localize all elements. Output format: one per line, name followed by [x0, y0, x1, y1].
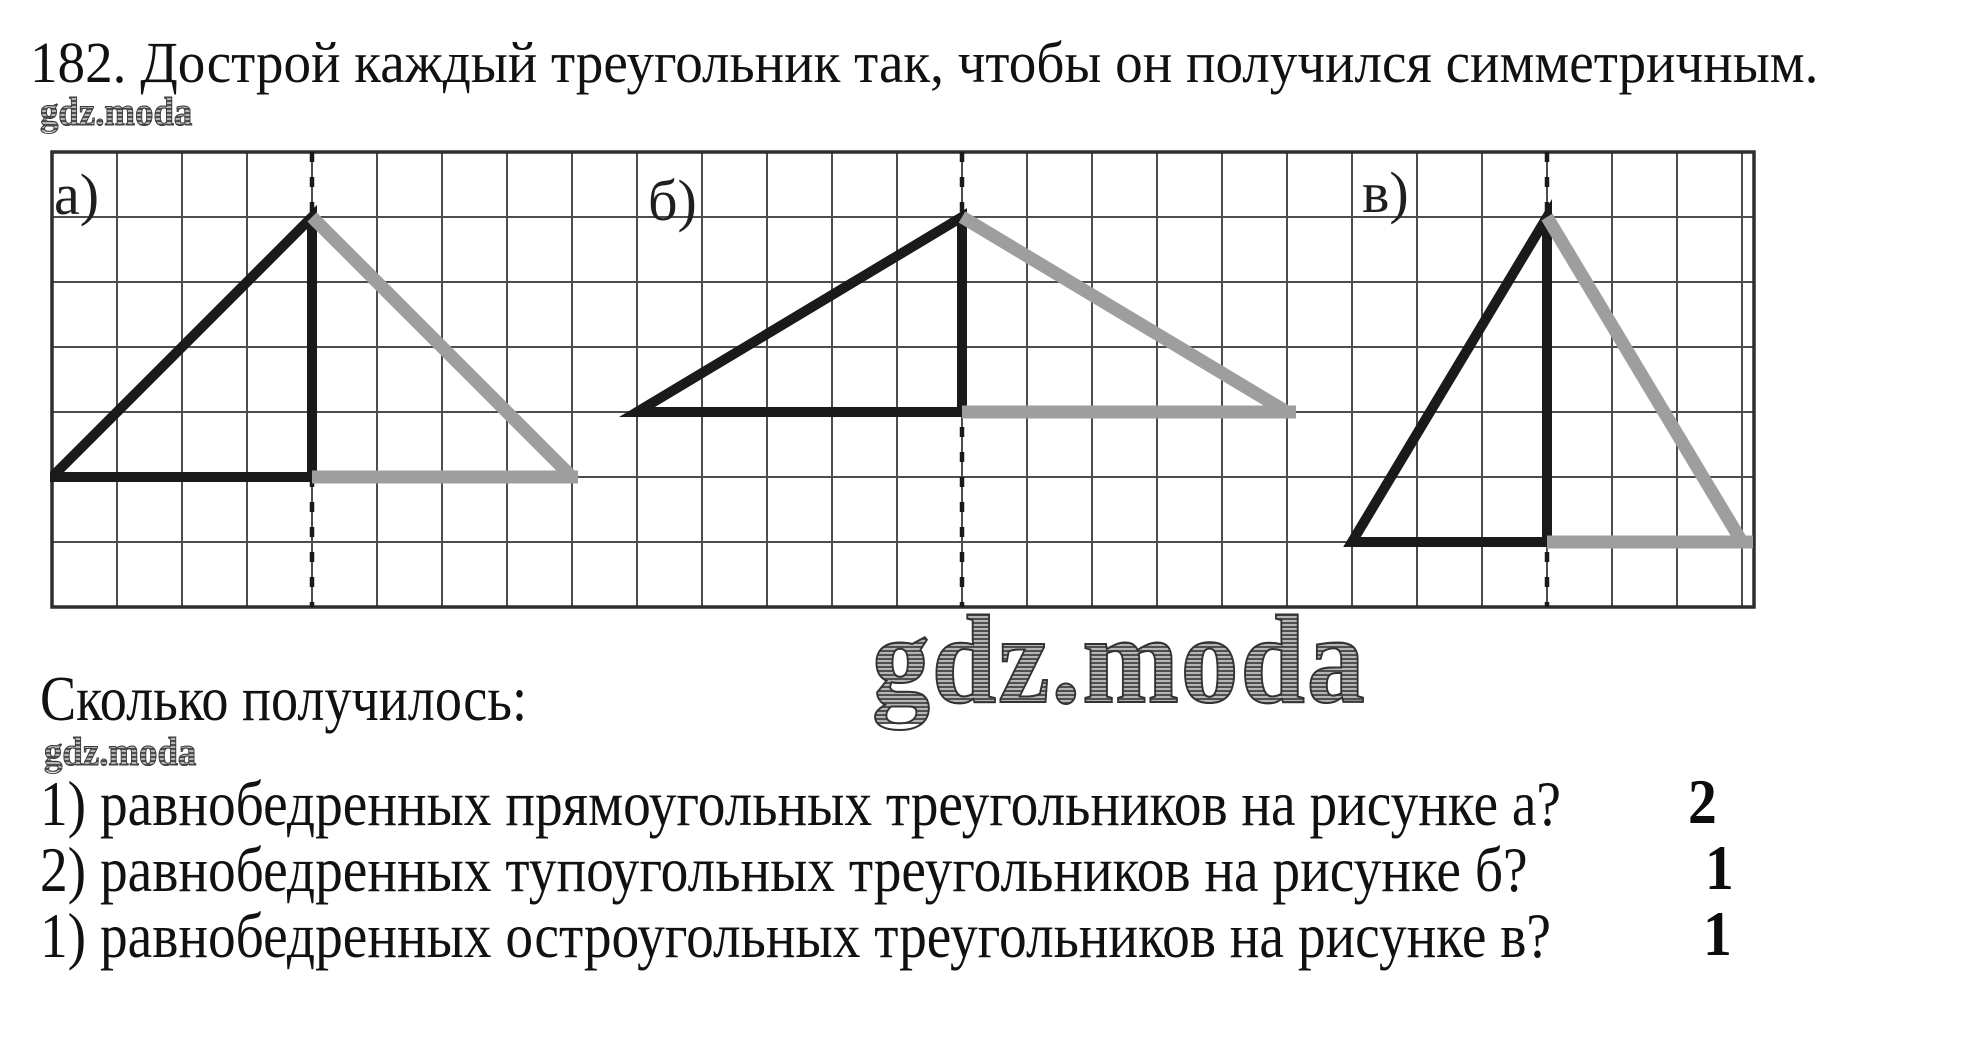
triangle-v-gray-segment: [1547, 217, 1742, 542]
triangle-b-gray-segment: [962, 217, 1287, 412]
triangle-v-black: [1352, 217, 1547, 542]
triangle-b-black: [637, 217, 962, 412]
subheading: Сколько получилось:: [40, 668, 527, 731]
figure-label-a: а): [54, 166, 99, 224]
watermark-large: gdz.moda: [872, 598, 1367, 724]
watermark-small-top: gdz.moda: [40, 92, 192, 132]
question-1-text: 1) равнобедренных прямоугольных треуголь…: [40, 772, 1561, 836]
page-title: 182. Дострой каждый треугольник так, что…: [30, 34, 1818, 92]
figure-label-b: б): [648, 172, 697, 230]
question-2-text: 2) равнобедренных тупоугольных треугольн…: [40, 838, 1528, 902]
question-2-answer: 1: [1705, 836, 1734, 900]
watermark-small-mid: gdz.moda: [44, 732, 196, 772]
grid-svg: [50, 150, 1756, 609]
question-3-answer: 1: [1703, 902, 1732, 966]
question-1-answer: 2: [1688, 770, 1717, 834]
figure-label-v: в): [1362, 164, 1409, 222]
question-3-text: 1) равнобедренных остроугольных треуголь…: [40, 904, 1551, 968]
grid-figure: [50, 150, 1756, 613]
